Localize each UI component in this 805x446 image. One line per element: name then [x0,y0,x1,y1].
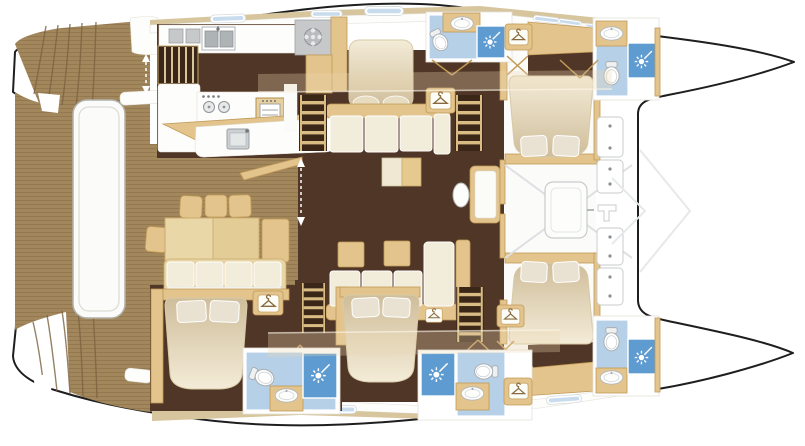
deck-seat-bottom [124,368,152,384]
deck-locker [597,117,623,157]
wardrobe [426,88,455,113]
clothes-hanger-icon [509,383,528,399]
island-sink [227,129,249,149]
washbasin-icon [275,389,298,402]
stove-burner-icon [304,28,321,45]
toilet-icon [475,364,498,379]
washbasin-icon [600,27,623,40]
dining-table [165,218,259,261]
bathroom-bow-port [593,316,660,396]
salon-wall [500,214,505,258]
washbasin-icon [461,387,484,400]
galley-counter-side [158,84,200,152]
salon-stool [338,242,364,267]
washbasin-icon [451,17,474,30]
dining-chair [205,195,227,217]
wardrobe [505,24,532,50]
foredeck-wedge [528,22,593,55]
window-hatch-icon [365,7,404,16]
window-hatch-icon [311,10,342,17]
dining-chair [229,195,252,218]
cockpit-bench [262,219,289,262]
toilet-icon [604,328,619,351]
cutting-board [169,29,183,43]
dining-chair [179,195,202,218]
catamaran-floorplan [0,0,805,446]
bathroom-aft-port [243,348,340,414]
floorplan-canvas [0,0,805,446]
plate-rack [158,46,198,84]
wardrobe [504,378,532,405]
bathroom-end-wall [655,318,660,392]
bathroom-end-wall [655,28,660,96]
clothes-hanger-icon [258,295,279,312]
bathroom-mid [418,350,532,420]
deck-locker [597,268,623,305]
deck-notch-bottom [33,374,53,391]
clothes-hanger-icon [430,92,451,109]
wardrobe [497,305,524,327]
companionway-ladder [299,95,327,151]
swim-platform [73,100,125,318]
cutting-board [186,29,200,43]
window-hatch-icon [210,14,245,23]
cabin-wall [151,289,163,403]
washbasin-icon [600,371,623,384]
salon-wall [500,160,505,204]
clothes-hanger-icon [509,29,528,45]
double-sink-icon [202,26,235,50]
deck-locker [597,160,623,193]
companionway-ladder [455,95,483,151]
double-berth-aft-port [165,298,247,389]
salon-stool [384,241,410,266]
port-berth-headboard [505,253,597,263]
companionway-ladder [301,283,326,333]
salon-side-table [382,158,421,186]
clothes-hanger-icon [426,309,443,323]
clothes-hanger-icon [501,309,520,324]
deck-locker [597,228,623,265]
wardrobe [253,291,283,315]
